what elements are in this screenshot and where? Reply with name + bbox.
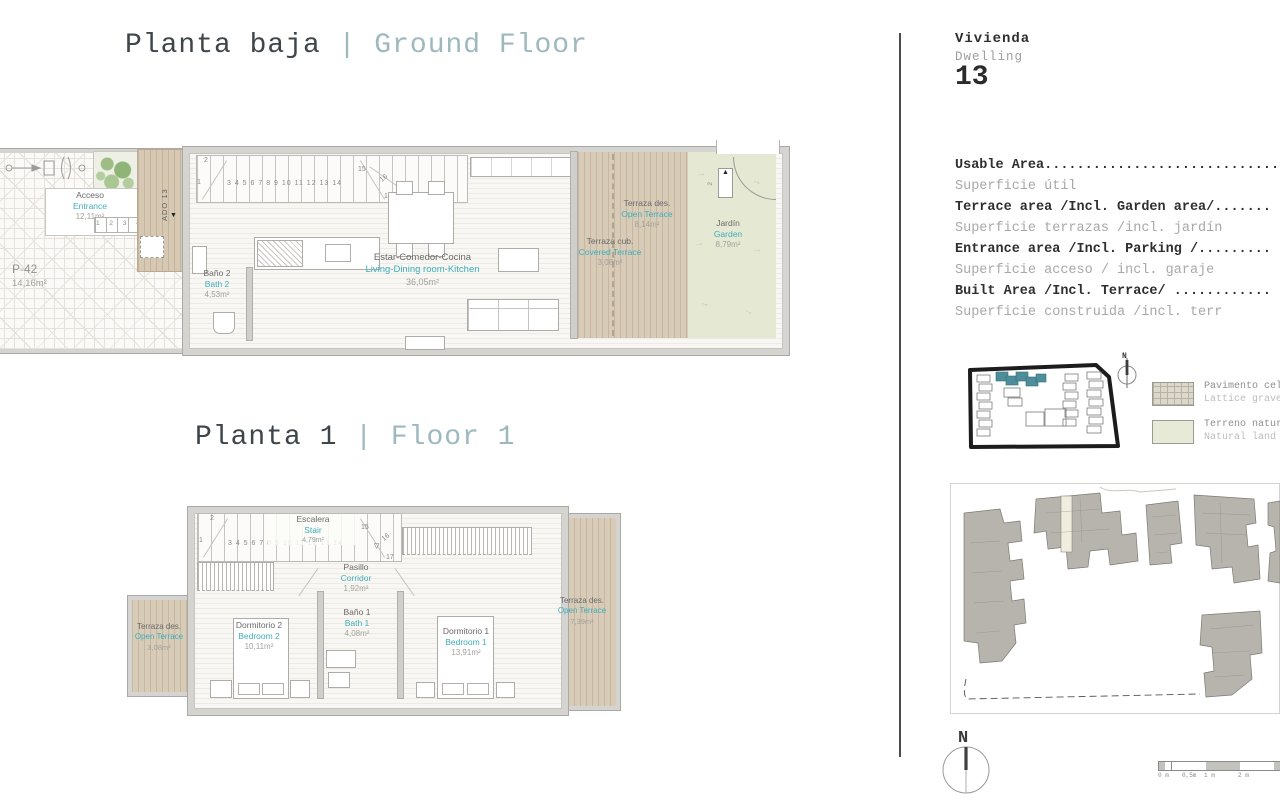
sofa xyxy=(467,299,559,331)
ground-floor-title-es: Planta baja xyxy=(125,30,321,61)
legend-paving-en: Lattice grave xyxy=(1204,393,1280,406)
area-line-usable-en: Usable Area.............................… xyxy=(955,155,1280,176)
legend: Pavimento cel Lattice grave Terreno natu… xyxy=(1152,380,1280,454)
scale-label-05: 0,5m xyxy=(1182,772,1196,779)
floor1-title-sep: | xyxy=(355,422,373,453)
legend-paving-es: Pavimento cel xyxy=(1204,380,1280,393)
floor1-title: Planta 1 | Floor 1 xyxy=(195,422,515,453)
scale-bar-segments xyxy=(1158,761,1280,771)
hob-hatch xyxy=(257,240,303,267)
scale-label-0: 0 m xyxy=(1158,772,1169,779)
key-plan-map: N xyxy=(948,350,1140,464)
kitchen-top-counter xyxy=(470,157,572,177)
pillow xyxy=(262,683,284,695)
stair-down-icon: ▽ xyxy=(374,542,379,550)
entry-step-number: 2 xyxy=(707,182,714,186)
site-plan xyxy=(950,483,1280,723)
dining-chair xyxy=(396,181,413,195)
f1-stair-num-2: 2 xyxy=(210,515,214,522)
pillow xyxy=(442,683,464,695)
entrance-step-numbers: 1 2 3 4 xyxy=(96,220,138,227)
f1-stair-num-17: 17 xyxy=(386,554,394,561)
wardrobe-bedroom1 xyxy=(402,527,532,555)
area-line-built-en: Built Area /Incl. Terrace/ ............ xyxy=(955,281,1280,302)
key-plan-highlight xyxy=(996,372,1046,386)
gf-stair-treads: 3 4 5 6 7 8 9 10 11 12 13 14 xyxy=(227,180,342,187)
dining-table xyxy=(388,192,454,244)
bath1-sink xyxy=(326,650,356,668)
bath1-wall-right xyxy=(398,592,403,698)
area-summary: Usable Area.............................… xyxy=(955,155,1280,323)
paving-swatch xyxy=(1152,382,1194,406)
gf-stair-num-15: 15 xyxy=(358,166,366,173)
area-line-built-es: Superficie construida /incl. terr xyxy=(955,302,1280,323)
f1-stair-num-1: 1 xyxy=(199,537,203,544)
bath2-sink xyxy=(192,246,207,274)
kitchen-counter xyxy=(254,237,380,270)
nightstand xyxy=(416,682,435,698)
sheet-stage: Planta baja | Ground Floor P-42 14,16m² … xyxy=(0,0,1280,800)
kitchen-sink xyxy=(325,244,351,262)
compass-icon: N xyxy=(936,724,1006,796)
bed-bedroom2 xyxy=(233,618,289,699)
vehicle-schematic-icon xyxy=(2,151,94,185)
gf-stair-num-2: 2 xyxy=(204,157,208,164)
scale-bar: 0 m 0,5m 1 m 2 m xyxy=(1158,761,1280,781)
terrace-dashed-line xyxy=(612,154,614,336)
nightstand xyxy=(290,680,310,698)
ado-label: ADO 13 xyxy=(160,170,174,240)
dwelling-label-es: Vivienda xyxy=(955,31,1030,47)
area-line-entrance-es: Superficie acceso / incl. garaje xyxy=(955,260,1280,281)
bath1-toilet xyxy=(328,672,350,688)
garden-arrow-icon: → xyxy=(693,237,705,250)
legend-item-natural: Terreno natur Natural land xyxy=(1152,418,1280,454)
bath2-toilet xyxy=(213,312,235,334)
pillow xyxy=(238,683,260,695)
entry-door-step: ▲ xyxy=(718,168,733,198)
area-line-terrace-en: Terrace area /Incl. Garden area/....... xyxy=(955,197,1280,218)
legend-natural-es: Terreno natur xyxy=(1204,418,1280,431)
ground-floor-title-en: Ground Floor xyxy=(374,30,588,61)
entry-arrow-icon: ▲ xyxy=(722,169,729,176)
svg-text:N: N xyxy=(1122,352,1127,361)
legend-item-paving: Pavimento cel Lattice grave xyxy=(1152,380,1280,416)
gf-open-terrace xyxy=(578,152,688,338)
legend-natural-en: Natural land xyxy=(1204,431,1280,444)
f1-stair-num-15: 15 xyxy=(361,524,369,531)
nightstand xyxy=(496,682,515,698)
key-plan-compass-icon: N xyxy=(1118,352,1136,388)
site-plan-highlight-unit xyxy=(1061,496,1072,552)
gf-stair-num-1: 1 xyxy=(197,179,201,186)
coffee-table xyxy=(498,248,539,272)
porch-step xyxy=(405,336,445,350)
garden-arrow-icon: → xyxy=(752,244,762,255)
vegetation-patch xyxy=(93,151,139,193)
area-line-usable-es: Superficie útil xyxy=(955,176,1280,197)
bath1-wall-left xyxy=(318,592,323,698)
facade-wall xyxy=(571,152,577,338)
ground-floor-title: Planta baja | Ground Floor xyxy=(125,30,588,61)
section-divider xyxy=(899,33,901,757)
scale-label-1: 1 m xyxy=(1204,772,1215,779)
area-line-entrance-en: Entrance area /Incl. Parking /......... xyxy=(955,239,1280,260)
wardrobe-bedroom2 xyxy=(197,562,274,591)
f1-stair-treads: 3 4 5 6 7 8 9 10 11 12 13 14 xyxy=(228,540,343,547)
scale-label-2: 2 m xyxy=(1238,772,1249,779)
dwelling-number: 13 xyxy=(955,62,989,93)
pillow xyxy=(467,683,489,695)
dining-chair xyxy=(428,181,445,195)
porch-recess xyxy=(716,140,780,154)
floor1-title-en: Floor 1 xyxy=(391,422,516,453)
dining-chair xyxy=(396,243,413,257)
svg-text:N: N xyxy=(958,729,968,748)
ground-floor-title-sep: | xyxy=(339,30,357,61)
floorplan-sheet-page: { "icons": { "down_arrow": "▼", "up_arro… xyxy=(0,0,1280,800)
natural-swatch xyxy=(1152,420,1194,444)
nightstand xyxy=(210,680,232,698)
bed-bedroom1 xyxy=(437,616,494,699)
ado-dashed-box xyxy=(140,236,164,258)
dining-chair xyxy=(428,243,445,257)
garden-arrow-icon: → xyxy=(696,168,706,179)
area-line-terrace-es: Superficie terrazas /incl. jardín xyxy=(955,218,1280,239)
ado-arrow-icon: ▼ xyxy=(170,212,177,219)
floor1-title-es: Planta 1 xyxy=(195,422,337,453)
bath2-wall xyxy=(247,268,252,340)
